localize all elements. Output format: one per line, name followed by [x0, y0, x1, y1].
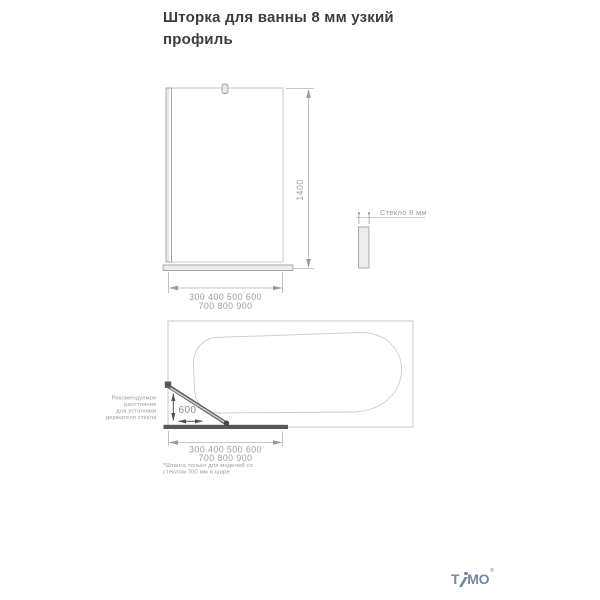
- front-view: 1400 300 400 500 600 700 800 900: [163, 84, 314, 311]
- holder-note-line2: расстояние: [124, 402, 157, 408]
- product-drawing-page: Шторка для ванны 8 мм узкий профиль 1400: [0, 0, 600, 600]
- technical-drawing: 1400 300 400 500 600 700 800 900 Стекло …: [0, 0, 600, 600]
- plan-width-dimension: 300 400 500 600 700 800 900: [169, 431, 283, 463]
- top-clamp: [222, 84, 228, 94]
- bar-glass-connector: [224, 421, 229, 426]
- bathtub-outline: [194, 333, 402, 414]
- holder-note-line4: держателя стекла: [106, 415, 157, 421]
- glass-cross-section: [359, 227, 370, 268]
- plan-view: 600 Рекомендуемое расстояние для установ…: [106, 321, 413, 476]
- height-dimension: 1400: [286, 89, 314, 269]
- bottom-seal-strip: [163, 265, 293, 271]
- plan-width-labels-line2: 700 800 900: [199, 453, 253, 463]
- holder-note-line1: Рекомендуемое: [112, 396, 158, 402]
- glass-panel: [168, 88, 283, 262]
- front-width-dimension: 300 400 500 600 700 800 900: [169, 272, 283, 311]
- wall-profile: [166, 88, 172, 262]
- holder-note: Рекомендуемое расстояние для установки д…: [106, 396, 157, 422]
- holder-distance-label: 600: [179, 405, 197, 416]
- glass-thickness-label: Стекло 8 мм: [380, 208, 427, 217]
- holder-note-line3: для установки: [116, 409, 156, 415]
- front-width-labels-line2: 700 800 900: [199, 301, 253, 311]
- logo-letters-mo: MO: [467, 571, 489, 587]
- timo-logo: T MO ®: [451, 565, 494, 587]
- logo-slash-i-icon: [460, 573, 466, 586]
- glass-thickness-detail: Стекло 8 мм: [356, 208, 427, 268]
- registered-mark: ®: [490, 568, 493, 574]
- logo-letter-t: T: [451, 571, 459, 587]
- footnote: *Штанга только для моделей со стеклом 70…: [163, 462, 253, 476]
- footnote-line2: стеклом 700 мм и шире: [163, 470, 230, 476]
- page-title: Шторка для ванны 8 мм узкий профиль: [163, 7, 421, 50]
- footnote-line1: *Штанга только для моделей со: [163, 462, 253, 469]
- height-dimension-label: 1400: [295, 179, 305, 200]
